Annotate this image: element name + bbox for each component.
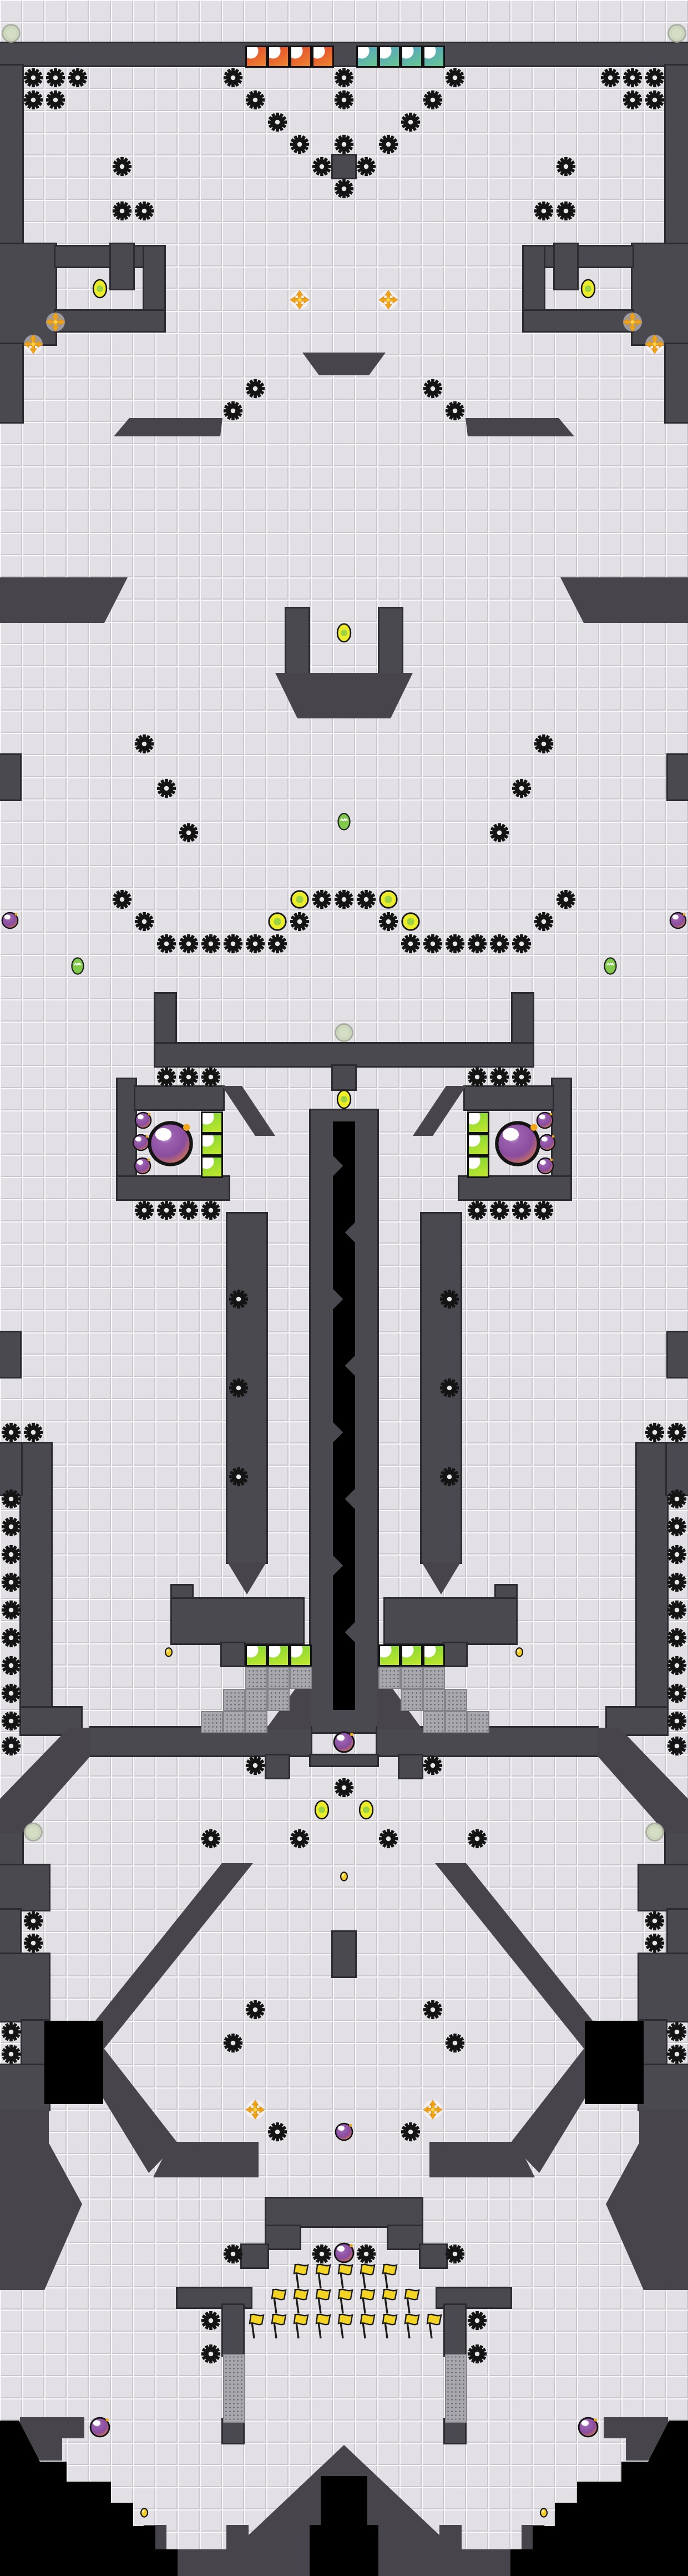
- spike-icon: [289, 1828, 310, 1849]
- spike-icon: [422, 89, 443, 110]
- boost-icon: [644, 333, 666, 355]
- spike-icon: [333, 178, 355, 199]
- bomb-icon: [332, 1730, 356, 1754]
- spike-icon: [222, 2032, 244, 2054]
- gate-off-column: [445, 2354, 467, 2423]
- spike-icon: [333, 889, 355, 910]
- spike-icon: [444, 2032, 466, 2054]
- spike-icon: [222, 933, 244, 954]
- spike-icon: [245, 378, 266, 399]
- void-area: [333, 1121, 355, 1710]
- boost-icon: [621, 311, 644, 333]
- powerup-icon: [335, 621, 353, 645]
- wall-block: [0, 344, 22, 422]
- spike-icon: [666, 1488, 687, 1510]
- spike-icon: [644, 1422, 665, 1443]
- spike-icon: [45, 67, 66, 88]
- wall-block: [524, 246, 544, 311]
- gate-off-tile: [290, 1667, 312, 1689]
- spike-icon: [666, 1735, 687, 1757]
- gate-off-tile: [445, 1711, 467, 1733]
- team-blue-tile: [378, 46, 401, 68]
- spike-icon: [400, 112, 421, 133]
- gate-off-tile: [423, 1689, 445, 1711]
- wall-slope: [0, 2110, 82, 2290]
- wall-block: [666, 344, 688, 422]
- spike-icon: [200, 1828, 221, 1849]
- spike-icon: [112, 156, 133, 177]
- wall-block: [333, 1066, 355, 1089]
- wall-block: [445, 2419, 465, 2443]
- wall-block: [0, 1332, 20, 1377]
- spike-icon: [439, 1466, 460, 1487]
- spike-icon: [289, 134, 310, 155]
- spike-icon: [666, 1655, 687, 1676]
- neutral-flag-icon: [267, 2312, 287, 2341]
- spike-icon: [511, 933, 532, 954]
- wall-block: [421, 2245, 446, 2267]
- gate-off-tile: [267, 1667, 290, 1689]
- powerup-icon: [90, 276, 109, 301]
- wall-slope: [0, 577, 128, 623]
- spike-icon: [644, 1910, 665, 1931]
- gate-green-tile: [378, 1644, 401, 1667]
- wall-slope: [606, 2110, 688, 2290]
- spike-icon: [267, 112, 288, 133]
- bomb-icon: [88, 2416, 111, 2438]
- wall-block: [135, 1087, 223, 1109]
- spike-icon: [245, 1755, 266, 1776]
- bomb-icon: [669, 911, 688, 930]
- spike-icon: [178, 1200, 199, 1221]
- wall-slope: [302, 353, 386, 375]
- spike-icon: [289, 911, 310, 932]
- spike-icon: [45, 89, 66, 110]
- spike-icon: [245, 933, 266, 954]
- spike-icon: [356, 889, 377, 910]
- gate-off-tile: [378, 1667, 401, 1689]
- wall-block: [144, 246, 164, 311]
- wall-block: [668, 1910, 688, 1954]
- spike-icon: [200, 933, 221, 954]
- wall-block: [155, 1044, 533, 1066]
- spike-icon: [156, 1066, 177, 1088]
- wall-slope: [413, 1086, 466, 1136]
- spike-icon: [622, 67, 643, 88]
- wall-block: [496, 1586, 516, 1600]
- wall-block: [639, 2065, 688, 2110]
- wall-block: [380, 608, 402, 675]
- spike-icon: [400, 2121, 421, 2142]
- spike-icon: [228, 1377, 249, 1398]
- spike-icon: [267, 2121, 288, 2142]
- bomb-icon: [535, 1111, 555, 1130]
- spike-icon: [444, 67, 466, 88]
- spike-icon: [422, 933, 443, 954]
- portal-icon: [0, 22, 22, 44]
- gate-green-tile: [201, 1134, 223, 1156]
- bomb-icon: [134, 1111, 153, 1130]
- wall-slope: [114, 418, 222, 436]
- wall-slope: [275, 673, 413, 718]
- powerup-icon: [335, 1087, 353, 1111]
- spike-icon: [644, 89, 665, 110]
- spike-icon: [644, 1933, 665, 1954]
- bomb-icon: [1, 911, 20, 930]
- spike-icon: [134, 733, 155, 754]
- gate-off-tile: [467, 1711, 489, 1733]
- spike-icon: [156, 778, 177, 799]
- wall-block: [666, 66, 688, 244]
- team-red-tile: [245, 46, 267, 68]
- spike-icon: [644, 67, 665, 88]
- gate-green-tile: [245, 1644, 267, 1667]
- spike-icon: [489, 1200, 510, 1221]
- wall-block: [333, 1932, 355, 1976]
- wall-slope: [466, 418, 574, 436]
- spike-icon: [333, 134, 355, 155]
- spike-icon: [156, 1200, 177, 1221]
- gate-off-tile: [245, 1689, 267, 1711]
- spike-icon: [311, 889, 332, 910]
- portal-icon: [22, 1821, 44, 1843]
- wall-block: [524, 311, 633, 331]
- wall-block: [266, 1755, 289, 1778]
- wall-block: [286, 608, 308, 675]
- wall-block: [222, 1643, 244, 1666]
- spike-icon: [422, 1999, 443, 2020]
- spike-icon: [533, 1200, 554, 1221]
- spike-icon: [200, 2343, 221, 2364]
- powerup-icon: [400, 911, 421, 932]
- wall-block: [0, 1865, 49, 1910]
- wall-slope: [153, 2142, 259, 2177]
- boost-icon: [44, 311, 67, 333]
- boost-icon: [422, 2099, 444, 2121]
- bomb-icon: [576, 2416, 599, 2438]
- spike-icon: [1, 1655, 22, 1676]
- spike-icon: [666, 1544, 687, 1565]
- spike-icon: [444, 2243, 466, 2265]
- boost-icon: [22, 333, 44, 355]
- spike-icon: [467, 1066, 488, 1088]
- boost-icon: [377, 289, 399, 311]
- spike-icon: [666, 1516, 687, 1537]
- spike-icon: [134, 911, 155, 932]
- spike-icon: [666, 2044, 687, 2065]
- portal-icon: [333, 1022, 355, 1044]
- gate-off-tile: [245, 1711, 267, 1733]
- bomb-icon: [332, 2241, 355, 2264]
- game-map-canvas[interactable]: [0, 0, 688, 2576]
- wall-block: [0, 1954, 49, 2021]
- gate-off-column: [223, 2354, 245, 2423]
- spike-icon: [666, 1422, 687, 1443]
- spike-icon: [439, 1377, 460, 1398]
- powerup-icon: [289, 889, 310, 910]
- void-area: [310, 2525, 378, 2576]
- team-red-tile: [312, 46, 334, 68]
- wall-slope: [227, 1562, 266, 1594]
- spike-icon: [444, 933, 466, 954]
- gate-off-tile: [445, 1689, 467, 1711]
- neutral-flag-icon: [356, 2312, 376, 2341]
- portal-icon: [644, 1821, 666, 1843]
- wall-block: [0, 43, 688, 66]
- spike-icon: [666, 2021, 687, 2042]
- gate-green-tile: [401, 1644, 423, 1667]
- spike-icon: [245, 1999, 266, 2020]
- team-red-tile: [267, 46, 290, 68]
- spike-icon: [489, 933, 510, 954]
- bomb-icon: [334, 2122, 355, 2142]
- spike-icon: [356, 156, 377, 177]
- bomb-icon: [538, 1133, 557, 1153]
- spike-icon: [1, 1572, 22, 1593]
- spike-icon: [600, 67, 621, 88]
- wall-block: [385, 1599, 516, 1643]
- spike-icon: [467, 2310, 488, 2331]
- neutral-flag-icon: [401, 2312, 421, 2341]
- wall-slope: [560, 577, 688, 623]
- wall-slope: [422, 1562, 461, 1594]
- gate-off-tile: [423, 1667, 445, 1689]
- gate-green-tile: [201, 1156, 223, 1178]
- spike-icon: [1, 2044, 22, 2065]
- wall-block: [437, 2288, 510, 2307]
- wall-block: [639, 1865, 688, 1910]
- spike-icon: [666, 1627, 687, 1648]
- spike-icon: [222, 2243, 244, 2265]
- spike-icon: [511, 1200, 532, 1221]
- pickup-dot-icon: [164, 1647, 174, 1658]
- spike-icon: [533, 911, 554, 932]
- spike-icon: [112, 889, 133, 910]
- powerup-icon: [267, 911, 288, 932]
- spike-icon: [1, 1488, 22, 1510]
- wall-block: [637, 1443, 667, 1708]
- spike-icon: [444, 400, 466, 421]
- powerup-icon: [378, 889, 399, 910]
- pickup-dot-icon: [340, 1871, 349, 1883]
- spike-icon: [422, 378, 443, 399]
- pickup-dot-icon: [539, 2507, 549, 2519]
- wall-block: [266, 2198, 422, 2226]
- spike-icon: [511, 778, 532, 799]
- spike-icon: [178, 933, 199, 954]
- gate-off-tile: [201, 1711, 223, 1733]
- spike-icon: [200, 1200, 221, 1221]
- wall-block: [668, 755, 688, 799]
- bomb-icon: [131, 1133, 151, 1153]
- neutral-flag-icon: [290, 2312, 310, 2341]
- neutral-flag-icon: [334, 2312, 354, 2341]
- spike-icon: [533, 733, 554, 754]
- spike-icon: [555, 156, 576, 177]
- spike-icon: [333, 67, 355, 88]
- spike-icon: [489, 822, 510, 843]
- wall-block: [333, 155, 355, 178]
- wall-block: [668, 1332, 688, 1377]
- wall-block: [55, 311, 164, 331]
- gate-green-tile: [267, 1644, 290, 1667]
- spike-icon: [228, 1289, 249, 1310]
- grip-powerup-icon: [69, 954, 87, 978]
- wall-block: [21, 1443, 51, 1708]
- gate-off-tile: [267, 1689, 290, 1711]
- wall-block: [0, 66, 22, 244]
- powerup-icon: [579, 276, 598, 301]
- void-area: [0, 2421, 178, 2576]
- wall-block: [445, 2305, 465, 2355]
- spike-icon: [134, 1200, 155, 1221]
- powerup-icon: [312, 1798, 331, 1822]
- spike-icon: [1, 1544, 22, 1565]
- gate-green-tile: [201, 1111, 223, 1134]
- spike-icon: [555, 889, 576, 910]
- grip-powerup-icon: [601, 954, 619, 978]
- wall-block: [444, 1643, 466, 1666]
- wall-block: [465, 1087, 553, 1109]
- spike-icon: [267, 933, 288, 954]
- spike-icon: [1, 1516, 22, 1537]
- gate-green-tile: [467, 1134, 489, 1156]
- neutral-flag-icon: [378, 2312, 398, 2341]
- spike-icon: [378, 911, 399, 932]
- spike-icon: [400, 933, 421, 954]
- wall-block: [223, 2305, 243, 2355]
- spike-icon: [134, 200, 155, 222]
- spike-icon: [1, 1735, 22, 1757]
- spike-icon: [622, 89, 643, 110]
- spike-icon: [489, 1066, 510, 1088]
- void-area: [585, 2021, 644, 2104]
- wall-block: [0, 1443, 21, 1495]
- spike-icon: [666, 1710, 687, 1732]
- spike-icon: [378, 134, 399, 155]
- spike-icon: [23, 1422, 44, 1443]
- spike-icon: [178, 1066, 199, 1088]
- spike-icon: [112, 200, 133, 222]
- wall-block: [266, 2226, 300, 2248]
- bomb-icon: [133, 1156, 153, 1176]
- wall-block: [667, 1443, 688, 1495]
- spike-icon: [511, 1066, 532, 1088]
- spike-icon: [1, 1627, 22, 1648]
- boost-icon: [244, 2099, 266, 2121]
- void-area: [510, 2421, 688, 2576]
- spike-icon: [200, 2310, 221, 2331]
- spike-icon: [333, 89, 355, 110]
- spike-icon: [666, 1599, 687, 1621]
- wall-block: [639, 1954, 688, 2021]
- spike-icon: [555, 200, 576, 222]
- gate-green-tile: [467, 1111, 489, 1134]
- wall-block: [0, 755, 20, 799]
- neutral-flag-icon: [423, 2312, 443, 2341]
- spike-icon: [245, 89, 266, 110]
- spike-icon: [222, 400, 244, 421]
- wall-block: [0, 2065, 49, 2110]
- wall-block: [178, 2288, 251, 2307]
- spike-icon: [1, 1683, 22, 1704]
- boost-icon: [289, 289, 311, 311]
- wall-block: [311, 1755, 377, 1765]
- wall-block: [172, 1586, 192, 1600]
- spike-icon: [533, 200, 554, 222]
- spike-icon: [467, 2343, 488, 2364]
- spike-icon: [156, 933, 177, 954]
- spike-icon: [23, 1910, 44, 1931]
- wall-block: [172, 1599, 303, 1643]
- wall-slope: [429, 2142, 535, 2177]
- wall-slope: [222, 1086, 275, 1136]
- neutral-flag-icon: [245, 2312, 265, 2341]
- spike-icon: [23, 67, 44, 88]
- wall-block: [118, 1177, 229, 1199]
- gate-off-tile: [401, 1689, 423, 1711]
- wall-block: [223, 2419, 243, 2443]
- gate-off-tile: [401, 1667, 423, 1689]
- team-red-tile: [290, 46, 312, 68]
- gate-green-tile: [467, 1156, 489, 1178]
- spike-icon: [467, 1828, 488, 1849]
- spike-icon: [467, 933, 488, 954]
- spike-icon: [1, 1599, 22, 1621]
- spike-icon: [23, 1933, 44, 1954]
- gate-off-tile: [245, 1667, 267, 1689]
- spike-icon: [422, 1755, 443, 1776]
- gate-off-tile: [223, 1689, 245, 1711]
- team-blue-tile: [401, 46, 423, 68]
- wall-block: [388, 2226, 422, 2248]
- spike-icon: [1, 1422, 22, 1443]
- wall-block: [155, 994, 175, 1047]
- spike-icon: [1, 1710, 22, 1732]
- spike-icon: [23, 89, 44, 110]
- spike-icon: [333, 1777, 355, 1798]
- gate-off-tile: [423, 1711, 445, 1733]
- spike-icon: [178, 822, 199, 843]
- spike-icon: [200, 1066, 221, 1088]
- spike-icon: [228, 1466, 249, 1487]
- wall-block: [459, 1177, 570, 1199]
- neutral-flag-icon: [312, 2312, 332, 2341]
- wall-block: [555, 244, 577, 289]
- spike-icon: [222, 67, 244, 88]
- portal-icon: [666, 22, 688, 44]
- gate-green-tile: [290, 1644, 312, 1667]
- bomb-icon: [536, 1156, 555, 1176]
- spike-icon: [666, 1572, 687, 1593]
- spike-icon: [467, 1200, 488, 1221]
- spike-icon: [311, 156, 332, 177]
- wall-block: [0, 1910, 20, 1954]
- powerup-icon: [357, 1798, 376, 1822]
- spike-icon: [378, 1828, 399, 1849]
- team-blue-tile: [423, 46, 445, 68]
- spike-icon: [1, 2021, 22, 2042]
- wall-block: [111, 244, 133, 289]
- gate-off-tile: [223, 1711, 245, 1733]
- wall-block: [242, 2245, 267, 2267]
- spike-icon: [67, 67, 88, 88]
- spike-icon: [666, 1683, 687, 1704]
- void-area: [44, 2021, 103, 2104]
- grip-powerup-icon: [335, 810, 353, 833]
- team-blue-tile: [356, 46, 378, 68]
- spike-icon: [439, 1289, 460, 1310]
